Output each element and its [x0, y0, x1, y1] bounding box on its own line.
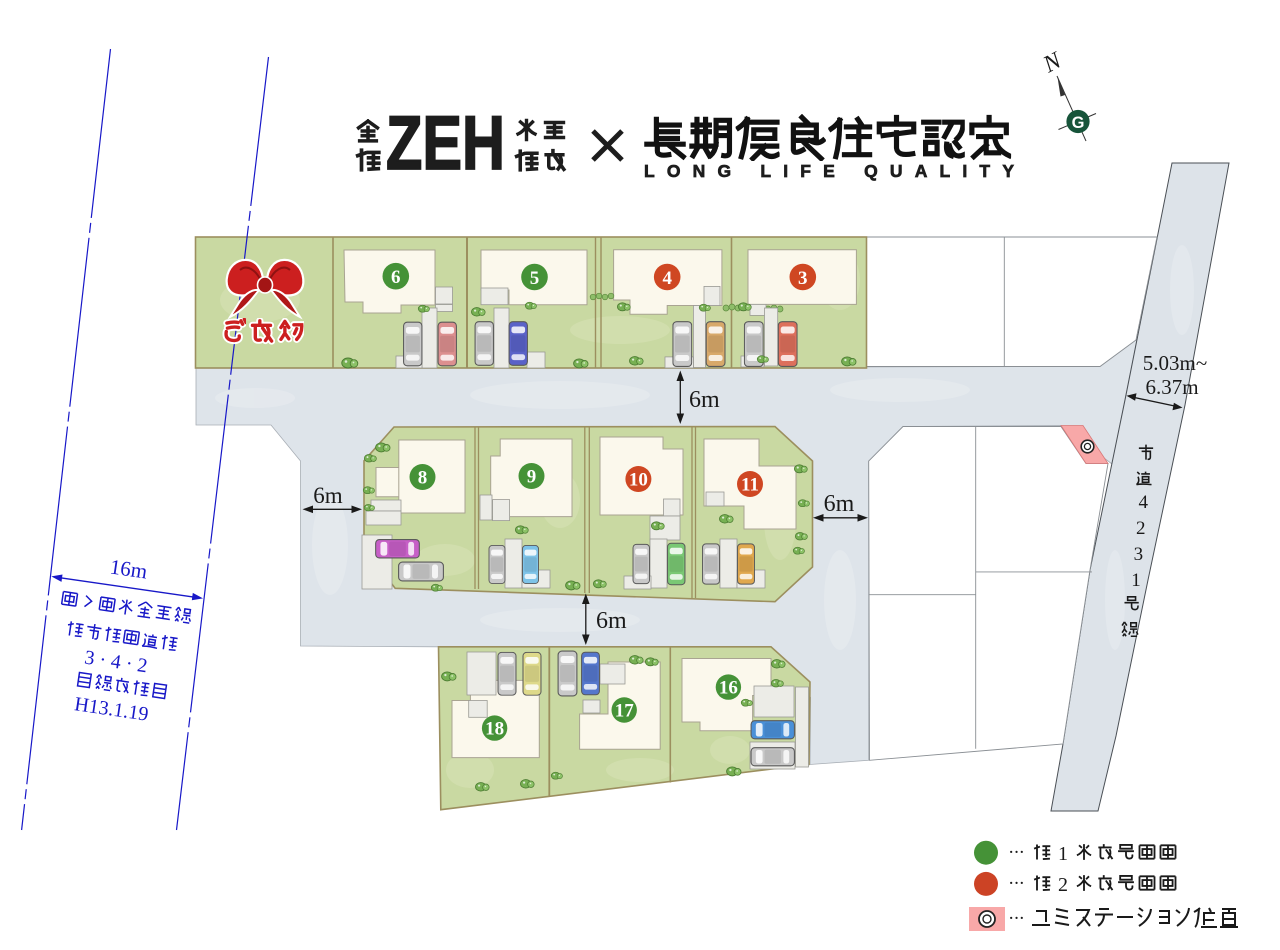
- svg-text:9: 9: [527, 467, 537, 488]
- svg-text:2: 2: [1136, 518, 1146, 539]
- svg-text:5: 5: [530, 268, 540, 289]
- svg-text:6m: 6m: [313, 483, 343, 508]
- svg-text:6m: 6m: [689, 387, 720, 413]
- svg-text:1: 1: [1131, 570, 1141, 591]
- svg-text:G: G: [1072, 114, 1085, 132]
- svg-text:ZEH: ZEH: [386, 101, 505, 186]
- svg-text:4: 4: [662, 268, 672, 289]
- svg-text:···: ···: [1008, 873, 1024, 894]
- svg-text:1: 1: [1058, 843, 1068, 865]
- svg-text:6m: 6m: [824, 491, 855, 517]
- svg-text:6: 6: [391, 267, 401, 288]
- svg-text:···: ···: [1008, 908, 1024, 929]
- svg-text:3: 3: [1134, 544, 1144, 565]
- svg-text:18: 18: [485, 719, 504, 740]
- svg-text:2: 2: [1058, 874, 1068, 896]
- svg-text:16: 16: [719, 678, 738, 699]
- svg-text:6.37m: 6.37m: [1145, 375, 1198, 399]
- svg-text:8: 8: [418, 468, 428, 489]
- svg-text:3: 3: [798, 268, 808, 289]
- svg-text:10: 10: [629, 470, 648, 491]
- svg-text:5.03m~: 5.03m~: [1143, 351, 1207, 375]
- svg-text:4: 4: [1138, 492, 1148, 513]
- svg-text:17: 17: [615, 701, 635, 722]
- svg-text:6m: 6m: [596, 608, 627, 634]
- svg-text:11: 11: [741, 475, 759, 496]
- svg-text:···: ···: [1008, 842, 1024, 863]
